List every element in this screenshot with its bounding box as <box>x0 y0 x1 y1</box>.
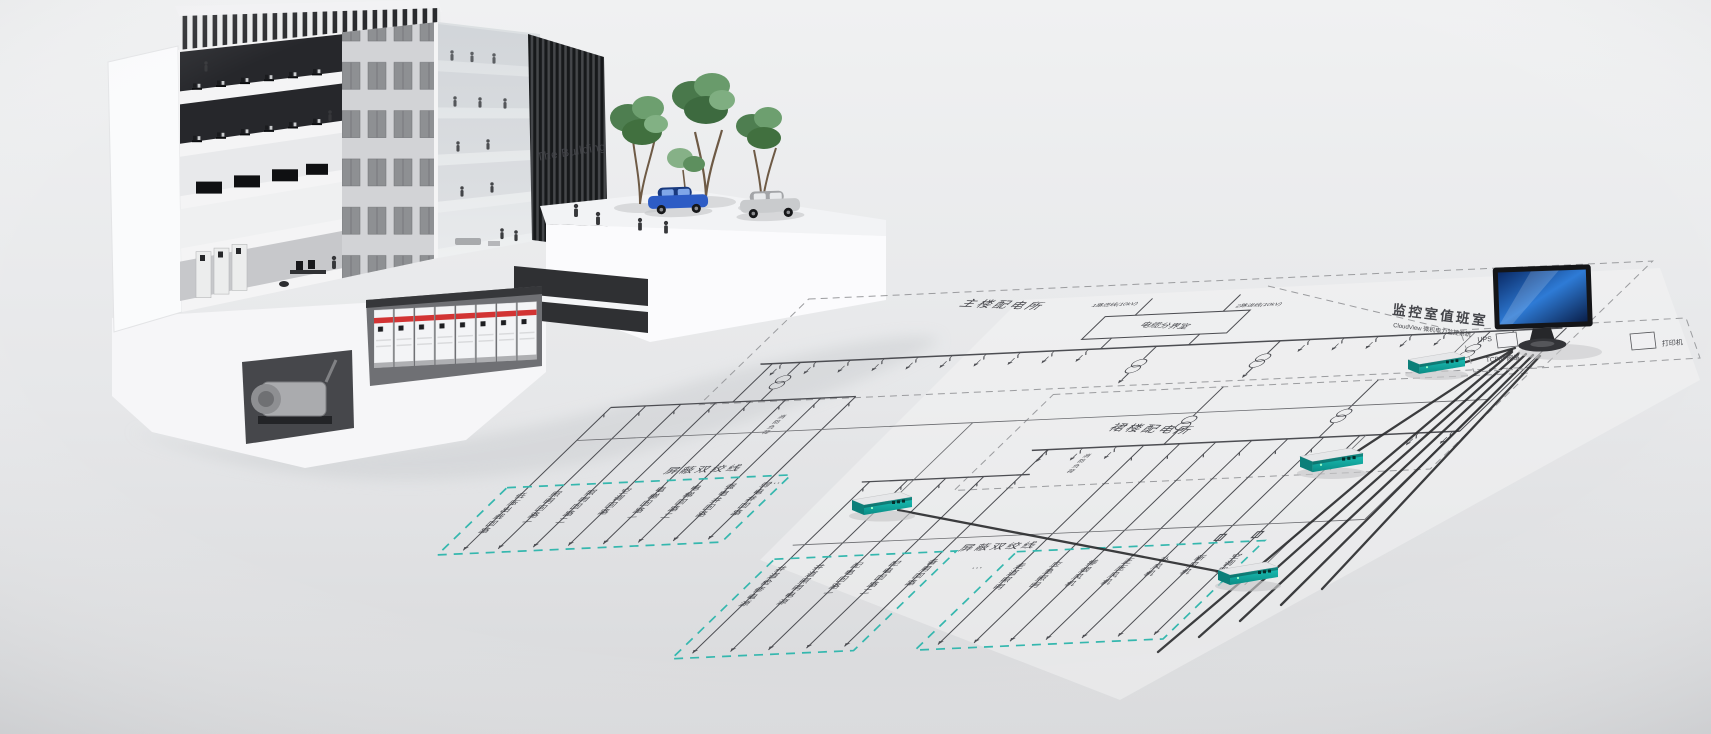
scene: The Building <box>0 0 1711 734</box>
illustration-canvas: The Building <box>0 0 1711 734</box>
vignette <box>0 0 1711 734</box>
